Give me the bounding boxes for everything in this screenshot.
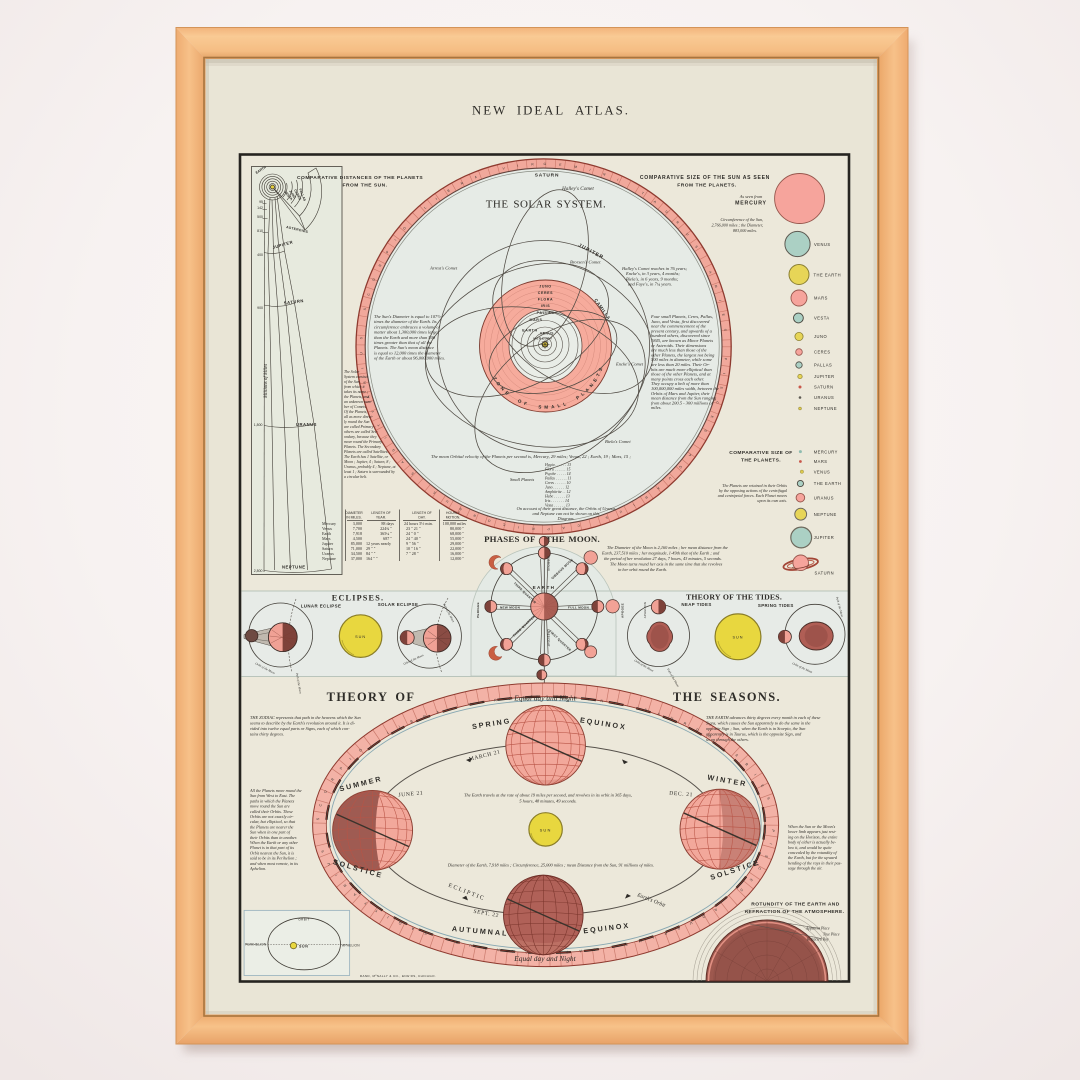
svg-text:As seen from: As seen from: [739, 194, 763, 199]
svg-text:Aphelion.: Aphelion.: [249, 866, 266, 871]
svg-text:sage through the air.: sage through the air.: [788, 866, 823, 871]
svg-text:Refracted Ray: Refracted Ray: [806, 938, 829, 942]
svg-text:THEORY OF: THEORY OF: [327, 690, 416, 704]
svg-text:others are called Sec-: others are called Sec-: [344, 430, 379, 434]
svg-text:FROM THE SUN.: FROM THE SUN.: [342, 183, 387, 189]
svg-text:Neptune: Neptune: [322, 556, 336, 561]
svg-text:SUN: SUN: [540, 827, 552, 832]
svg-text:MOTION.: MOTION.: [446, 516, 461, 520]
svg-text:NEPTUNE: NEPTUNE: [814, 406, 837, 411]
svg-text:810: 810: [257, 229, 263, 233]
svg-text:2,800: 2,800: [254, 569, 263, 573]
svg-text:NEPTUNE: NEPTUNE: [282, 565, 306, 570]
svg-text:164 " ": 164 " ": [366, 556, 378, 561]
svg-text:ber of Comets.: ber of Comets.: [344, 405, 367, 409]
svg-text:1,800: 1,800: [254, 423, 263, 427]
svg-text:VESTA: VESTA: [814, 316, 830, 321]
svg-text:THE EARTH: THE EARTH: [814, 273, 842, 278]
svg-text:PERIGEE: PERIGEE: [476, 602, 480, 618]
svg-text:95: 95: [259, 200, 263, 204]
svg-text:Biela's Comet: Biela's Comet: [605, 439, 631, 444]
svg-text:CERES: CERES: [814, 350, 831, 355]
svg-text:SATURN: SATURN: [814, 385, 834, 390]
svg-text:from which it: from which it: [344, 385, 366, 389]
svg-text:GIBBOUS: GIBBOUS: [546, 556, 550, 571]
svg-text:CRESCENT: CRESCENT: [546, 629, 550, 647]
svg-text:Encke's Comet: Encke's Comet: [615, 362, 644, 367]
svg-text:least 1 ; Saturn is surrounded: least 1 ; Saturn is surrounded by: [344, 470, 395, 474]
svg-text:Brorsen's Comet: Brorsen's Comet: [570, 260, 601, 265]
svg-text:in her orbit round the Earth.: in her orbit round the Earth.: [618, 567, 667, 572]
svg-text:Equal day and Night: Equal day and Night: [513, 694, 576, 703]
svg-text:THE PLANETS.: THE PLANETS.: [741, 458, 781, 464]
svg-text:FLORA: FLORA: [538, 298, 553, 302]
svg-text:NEAP TIDES: NEAP TIDES: [681, 602, 711, 607]
svg-text:Flora . . . . . . 15: Flora . . . . . . 15: [544, 468, 570, 472]
svg-text:URANUS: URANUS: [814, 495, 834, 500]
svg-text:THEORY OF THE TIDES.: THEORY OF THE TIDES.: [686, 593, 782, 602]
svg-text:EARTH: EARTH: [522, 329, 537, 333]
svg-text:Apparent Place: Apparent Place: [805, 927, 830, 931]
svg-text:SUN: SUN: [732, 636, 743, 640]
svg-text:THE ZODIAC represents that pat: THE ZODIAC represents that path in the h…: [250, 715, 361, 720]
svg-text:URANUS: URANUS: [814, 395, 834, 400]
svg-text:System consists: System consists: [344, 375, 369, 379]
svg-text:EARTH: EARTH: [533, 585, 556, 590]
svg-text:MERCURY: MERCURY: [735, 201, 767, 207]
svg-text:tains thirty degrees.: tains thirty degrees.: [250, 732, 284, 737]
svg-text:SUN: SUN: [355, 635, 366, 639]
svg-text:NEPTUNE: NEPTUNE: [814, 512, 837, 517]
svg-text:Hygia . . . . . . 13: Hygia . . . . . . 13: [544, 463, 571, 467]
svg-text:PALLAS: PALLAS: [814, 363, 832, 368]
svg-text:all as move direct-: all as move direct-: [344, 415, 374, 419]
svg-text:LUNAR ECLIPSE: LUNAR ECLIPSE: [301, 603, 342, 608]
svg-text:Pallas . . . . . . 11: Pallas . . . . . . 11: [544, 477, 571, 481]
svg-text:VENUS: VENUS: [814, 469, 831, 474]
svg-text:upon its own axis.: upon its own axis.: [757, 498, 787, 503]
svg-text:ORBIT: ORBIT: [298, 918, 309, 922]
svg-text:FULL MOON: FULL MOON: [568, 605, 589, 609]
svg-text:VENUS: VENUS: [814, 242, 831, 247]
svg-text:Equal day and Night: Equal day and Night: [513, 954, 576, 963]
svg-text:IRIS: IRIS: [541, 304, 550, 308]
svg-text:SOLAR ECLIPSE: SOLAR ECLIPSE: [378, 602, 419, 607]
svg-text:142: 142: [257, 206, 263, 210]
svg-text:a circular belt.: a circular belt.: [344, 475, 367, 479]
svg-text:DIAMETER: DIAMETER: [345, 511, 363, 515]
svg-text:MERCURY: MERCURY: [814, 449, 838, 454]
svg-text:Planets are called Satellites.: Planets are called Satellites.: [343, 450, 388, 454]
svg-text:SATURN: SATURN: [815, 571, 835, 576]
svg-text:CERES: CERES: [538, 291, 553, 295]
svg-text:COMPARATIVE SIZE OF THE SUN AS: COMPARATIVE SIZE OF THE SUN AS SEEN: [640, 175, 770, 181]
svg-text:APHELION: APHELION: [643, 602, 647, 618]
svg-text:Psyche . . . . . 14: Psyche . . . . . 14: [544, 472, 571, 476]
svg-text:MARS: MARS: [814, 296, 828, 301]
svg-text:seems to describe by the Earth: seems to describe by the Earth's revolut…: [250, 721, 356, 726]
svg-text:LENGTH OF: LENGTH OF: [412, 511, 431, 515]
svg-text:IN MILES.: IN MILES.: [346, 516, 362, 520]
svg-text:ECLIPSES.: ECLIPSES.: [332, 594, 384, 603]
svg-text:Hebe . . . . . . 13: Hebe . . . . . . 13: [544, 495, 570, 499]
svg-text:an unknown num-: an unknown num-: [344, 400, 373, 404]
svg-text:Iris . . . . . . . 14: Iris . . . . . . . 14: [544, 499, 569, 503]
svg-text:MARS: MARS: [530, 318, 543, 322]
svg-text:THE SOLAR SYSTEM.: THE SOLAR SYSTEM.: [486, 199, 607, 211]
svg-text:Ceres . . . . . . 10: Ceres . . . . . . 10: [545, 481, 571, 485]
svg-text:YEAR.: YEAR.: [376, 516, 386, 520]
svg-text:The Solar: The Solar: [344, 370, 360, 374]
svg-text:URANUS: URANUS: [296, 422, 317, 427]
svg-text:HOURLY: HOURLY: [446, 511, 461, 515]
svg-text:500: 500: [257, 215, 263, 219]
svg-text:THE EARTH advances thirty degr: THE EARTH advances thirty degrees every …: [706, 715, 820, 720]
svg-text:Diagram.: Diagram.: [557, 516, 575, 521]
svg-text:APOGEE: APOGEE: [621, 603, 625, 618]
svg-text:Halley's Comet: Halley's Comet: [561, 186, 594, 192]
svg-text:THE EARTH: THE EARTH: [814, 481, 842, 486]
svg-text:Millions of Miles: Millions of Miles: [264, 364, 269, 399]
svg-text:JUNO: JUNO: [539, 285, 551, 289]
svg-text:SATURN: SATURN: [535, 173, 559, 179]
svg-text:LENGTH OF: LENGTH OF: [371, 511, 390, 515]
svg-text:COMPARATIVE DISTANCES OF THE P: COMPARATIVE DISTANCES OF THE PLANETS: [297, 175, 423, 181]
svg-text:COMPARATIVE SIZE OF: COMPARATIVE SIZE OF: [729, 450, 792, 456]
svg-text:DAY.: DAY.: [418, 516, 425, 520]
svg-text:Small Planets: Small Planets: [510, 477, 535, 482]
svg-text:takes its name ;: takes its name ;: [344, 390, 369, 394]
svg-text:SPRING TIDES: SPRING TIDES: [758, 603, 794, 608]
svg-text:RAND, MºNALLY & CO., ENG'RS, C: RAND, MºNALLY & CO., ENG'RS, CHICAGO.: [360, 974, 436, 978]
svg-text:JUPITER: JUPITER: [814, 535, 835, 540]
svg-text:ROTUNDITY OF THE EARTH AND: ROTUNDITY OF THE EARTH AND: [751, 902, 839, 908]
svg-text:Arrest's Comet: Arrest's Comet: [429, 266, 458, 271]
svg-text:400: 400: [257, 253, 263, 257]
svg-text:7 " 28 ": 7 " 28 ": [406, 551, 419, 556]
svg-text:NEW IDEAL ATLAS.: NEW IDEAL ATLAS.: [472, 104, 630, 118]
svg-text:PERIHELION: PERIHELION: [245, 943, 267, 947]
svg-text:THE SEASONS.: THE SEASONS.: [673, 690, 781, 704]
svg-text:Amphitrite . . 12: Amphitrite . . 12: [544, 490, 570, 494]
svg-text:JUNO: JUNO: [814, 334, 827, 339]
svg-text:True Place: True Place: [823, 933, 840, 937]
svg-text:JUPITER: JUPITER: [814, 374, 835, 379]
svg-text:900: 900: [257, 306, 263, 310]
svg-text:are called Primary ;: are called Primary ;: [344, 425, 376, 429]
svg-text:ly round the Sun: ly round the Sun: [344, 420, 370, 424]
svg-text:NEW MOON: NEW MOON: [500, 605, 521, 609]
svg-text:MARS: MARS: [814, 459, 828, 464]
svg-text:miles.: miles.: [651, 405, 662, 410]
svg-text:Juno . . . . . . 12: Juno . . . . . . 12: [545, 486, 569, 490]
svg-text:FROM THE PLANETS.: FROM THE PLANETS.: [677, 183, 737, 189]
svg-text:so on through the others.: so on through the others.: [706, 737, 749, 742]
svg-text:APHELION: APHELION: [342, 944, 360, 948]
svg-text:move round the Primary: move round the Primary: [344, 440, 382, 444]
svg-text:The Moon turns round her axis: The Moon turns round her axis in the sam…: [610, 562, 723, 567]
svg-text:Planets. The Secondary: Planets. The Secondary: [343, 445, 381, 449]
svg-text:SUN: SUN: [299, 945, 308, 949]
